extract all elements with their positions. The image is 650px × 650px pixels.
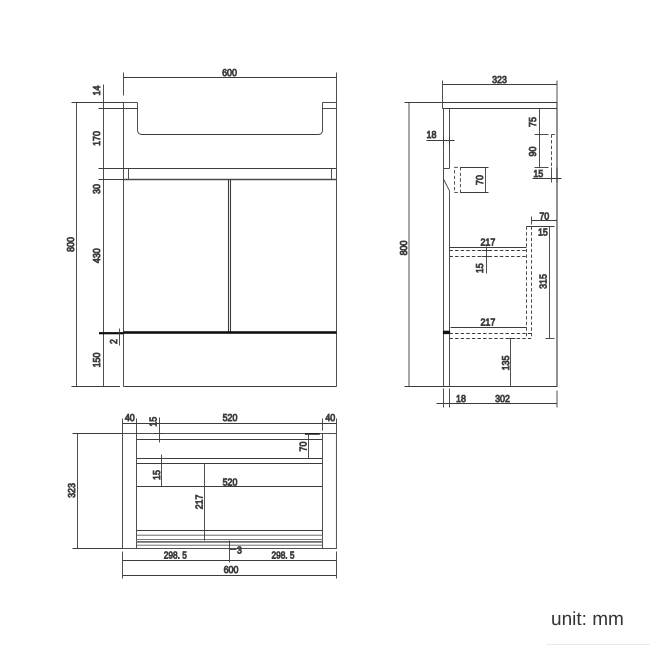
svg-text:302: 302 (495, 394, 510, 405)
svg-text:15: 15 (533, 169, 543, 180)
svg-text:15: 15 (148, 416, 159, 426)
svg-text:30: 30 (92, 184, 103, 194)
svg-text:3: 3 (237, 545, 242, 556)
svg-text:18: 18 (427, 130, 437, 141)
svg-text:14: 14 (92, 85, 103, 95)
svg-text:40: 40 (325, 413, 335, 424)
svg-text:150: 150 (92, 352, 103, 367)
svg-text:217: 217 (481, 318, 496, 329)
svg-text:15: 15 (152, 470, 163, 480)
svg-text:75: 75 (528, 117, 539, 127)
svg-text:520: 520 (223, 413, 238, 424)
svg-text:70: 70 (299, 441, 310, 451)
svg-text:600: 600 (222, 68, 237, 79)
svg-text:323: 323 (492, 75, 507, 86)
svg-text:323: 323 (67, 483, 78, 498)
svg-text:600: 600 (224, 565, 239, 576)
svg-text:217: 217 (481, 238, 496, 249)
svg-text:800: 800 (66, 237, 77, 252)
svg-text:800: 800 (399, 240, 410, 255)
svg-text:18: 18 (456, 394, 466, 405)
svg-text:298. 5: 298. 5 (272, 550, 295, 561)
svg-text:15: 15 (538, 228, 548, 239)
svg-text:90: 90 (528, 146, 539, 156)
svg-text:217: 217 (194, 494, 205, 509)
svg-text:15: 15 (475, 263, 486, 273)
svg-text:315: 315 (539, 274, 550, 289)
svg-text:unit: mm: unit: mm (551, 609, 624, 630)
svg-text:135: 135 (501, 355, 512, 370)
svg-text:298. 5: 298. 5 (164, 550, 187, 561)
svg-text:520: 520 (223, 478, 238, 489)
svg-text:40: 40 (125, 413, 135, 424)
svg-text:70: 70 (475, 175, 486, 185)
svg-text:170: 170 (92, 131, 103, 146)
svg-text:70: 70 (539, 211, 549, 222)
svg-text:430: 430 (92, 248, 103, 263)
svg-text:2: 2 (109, 339, 120, 344)
